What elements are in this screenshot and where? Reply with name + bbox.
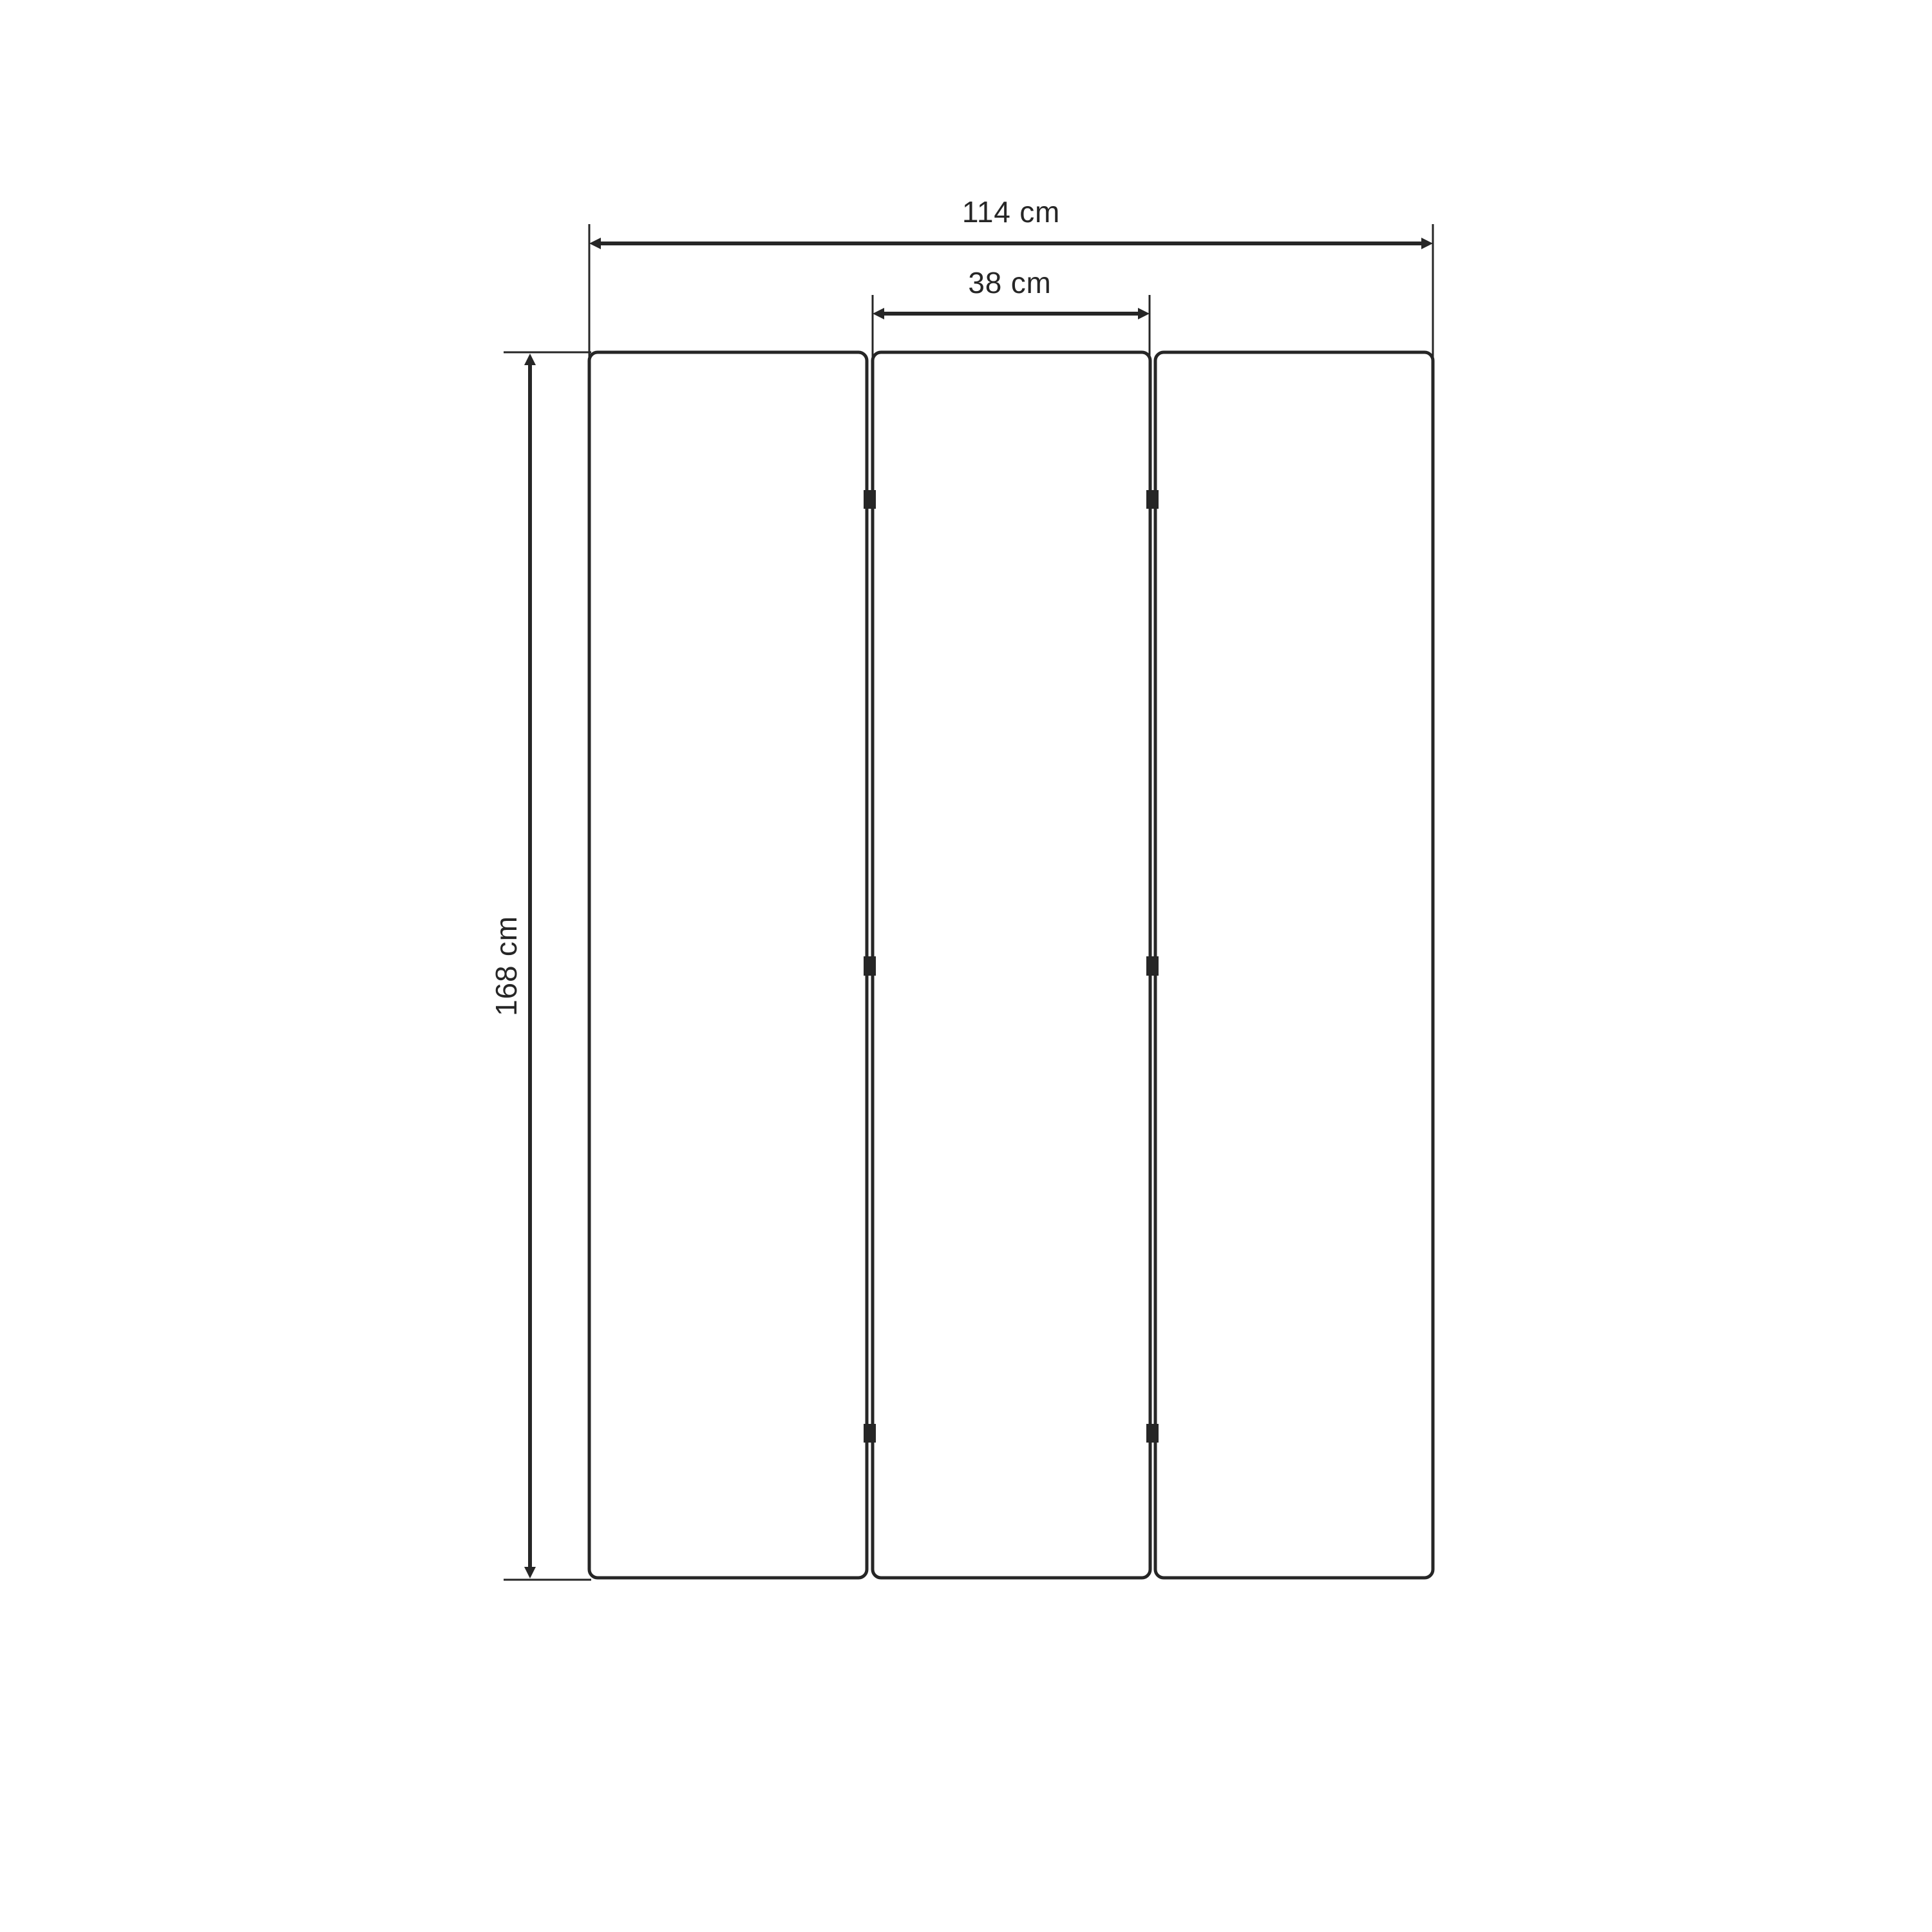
arrowhead-total-width-left — [589, 238, 601, 249]
arrowhead-height-bottom — [524, 1567, 536, 1578]
arrowhead-panel-width-right — [1138, 308, 1150, 319]
hinge-left-top — [864, 490, 876, 509]
height-label: 168 cm — [489, 916, 523, 1016]
panel-width-label: 38 cm — [968, 266, 1051, 299]
hinge-right-top — [1146, 490, 1159, 509]
panel-left — [589, 352, 867, 1578]
hinge-right-bottom — [1146, 1424, 1159, 1443]
panels-group — [589, 352, 1433, 1578]
panel-middle — [873, 352, 1150, 1578]
canvas: 114 cm 38 cm 168 cm — [0, 0, 1932, 1932]
hinge-right-middle — [1146, 956, 1159, 976]
arrowhead-total-width-right — [1421, 238, 1433, 249]
hinge-left-bottom — [864, 1424, 876, 1443]
technical-drawing: 114 cm 38 cm 168 cm — [0, 0, 1932, 1932]
arrowhead-height-top — [524, 354, 536, 365]
total-width-label: 114 cm — [962, 195, 1060, 229]
hinge-left-middle — [864, 956, 876, 976]
panel-right — [1155, 352, 1433, 1578]
arrowhead-panel-width-left — [873, 308, 884, 319]
